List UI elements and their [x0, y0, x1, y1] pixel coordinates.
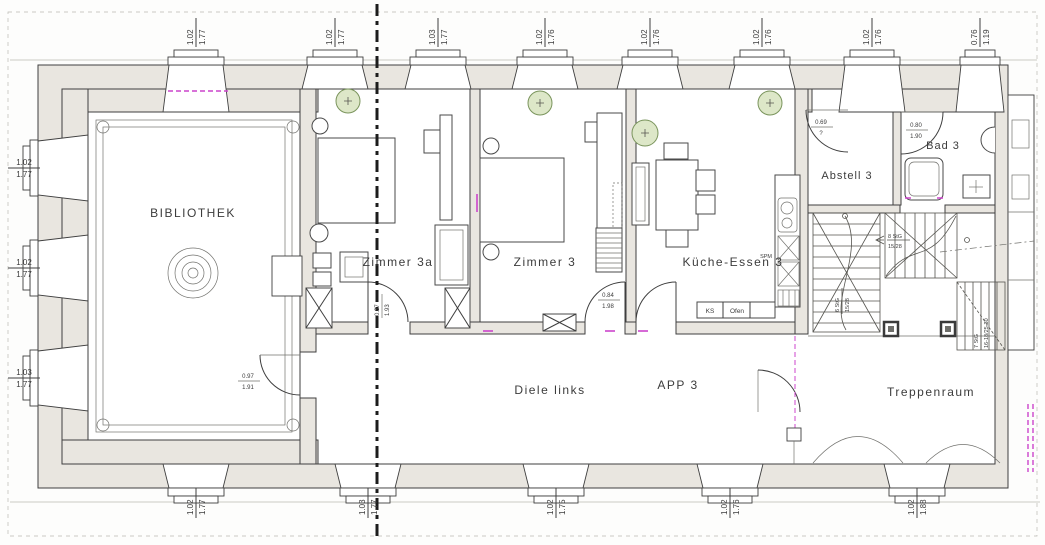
svg-text:1.98: 1.98: [602, 304, 614, 310]
dim-label: 1.03 1.77: [428, 18, 449, 47]
svg-text:1.02: 1.02: [186, 499, 195, 515]
tiled-stove-icon: [543, 314, 576, 331]
dim-label: 0.76 1.19: [970, 18, 991, 47]
svg-text:0.76: 0.76: [970, 29, 979, 45]
svg-text:1.76: 1.76: [874, 29, 883, 45]
radiator-icon: [596, 228, 622, 272]
dim-label: 1.02 1.76: [862, 18, 883, 47]
svg-text:1.02: 1.02: [752, 29, 761, 45]
treppenraum-label: Treppenraum: [887, 385, 975, 399]
bad-label: Bad 3: [926, 140, 960, 152]
svg-text:8 StG: 8 StG: [888, 234, 902, 240]
window: [512, 50, 578, 89]
wall-niche: [272, 256, 302, 296]
svg-text:1.77: 1.77: [16, 170, 32, 179]
svg-text:1.02: 1.02: [720, 499, 729, 515]
abstell-label: Abstell 3: [821, 170, 872, 182]
svg-text:0.80: 0.80: [910, 123, 922, 129]
svg-text:1.76: 1.76: [732, 499, 741, 515]
svg-text:1.76: 1.76: [547, 29, 556, 45]
plant-icon: [758, 91, 782, 115]
chair-icon: [666, 230, 688, 247]
svg-text:1.76: 1.76: [652, 29, 661, 45]
dining-table-icon: [656, 160, 698, 230]
svg-text:1.02: 1.02: [325, 29, 334, 45]
desk-icon: [440, 115, 452, 220]
window: [163, 50, 229, 112]
floor-plan-drawing: SPM KS Ofen: [0, 0, 1045, 545]
bench-icon: [632, 163, 649, 225]
ofen-label: Ofen: [730, 308, 744, 315]
window: [405, 50, 471, 89]
svg-text:15/28: 15/28: [888, 244, 902, 250]
bibliothek-label: BIBLIOTHEK: [150, 206, 236, 220]
washing-machine-icon: [963, 175, 990, 198]
svg-text:1.02: 1.02: [16, 258, 32, 267]
bed-icon: [318, 138, 395, 223]
window: [302, 50, 368, 89]
building-shell: [38, 65, 1034, 488]
side-table-icon: [310, 224, 328, 242]
side-table-icon: [312, 118, 328, 134]
svg-text:16-18/25-30: 16-18/25-30: [984, 318, 990, 348]
svg-text:1.93: 1.93: [385, 304, 391, 316]
svg-text:1.91: 1.91: [242, 385, 254, 391]
kueche-label: Küche-Essen 3: [683, 255, 784, 269]
shower-icon: [905, 158, 943, 200]
side-table-icon: [483, 244, 499, 260]
kitchen-counter: [775, 175, 800, 307]
dim-label: 1.02 1.76: [752, 18, 773, 47]
svg-text:1.77: 1.77: [337, 29, 346, 45]
wardrobe-icon: [597, 113, 622, 228]
svg-text:1.75: 1.75: [558, 499, 567, 515]
svg-text:1.77: 1.77: [370, 499, 379, 515]
svg-text:1.02: 1.02: [546, 499, 555, 515]
ks-ofen-units: KS Ofen: [697, 302, 775, 318]
chair-icon: [696, 170, 715, 191]
newel-post: [941, 322, 955, 336]
svg-text:1.90: 1.90: [910, 134, 922, 140]
left-windows: [23, 135, 88, 411]
plant-icon: [528, 91, 552, 115]
window: [729, 50, 795, 89]
newel-post: [884, 322, 898, 336]
svg-text:1.77: 1.77: [440, 29, 449, 45]
svg-text:0.87: 0.87: [375, 304, 381, 316]
svg-text:1.02: 1.02: [16, 158, 32, 167]
tiled-stove-icon: [306, 288, 332, 328]
svg-text:1.03: 1.03: [16, 368, 32, 377]
side-table-icon: [483, 138, 499, 154]
sofa-icon: [435, 225, 468, 285]
chair-icon: [696, 195, 715, 214]
svg-text:1.19: 1.19: [982, 29, 991, 45]
svg-text:1.02: 1.02: [907, 499, 916, 515]
svg-text:7 StG: 7 StG: [974, 334, 980, 348]
svg-text:1.77: 1.77: [198, 499, 207, 515]
svg-text:1.03: 1.03: [428, 29, 437, 45]
svg-text:1.77: 1.77: [16, 380, 32, 389]
chair-icon: [424, 130, 440, 153]
dim-label: 1.02 1.77: [186, 18, 207, 47]
zimmer3-label: Zimmer 3: [514, 255, 577, 269]
chair-icon: [585, 122, 598, 142]
svg-text:0.97: 0.97: [242, 374, 254, 380]
svg-text:1.02: 1.02: [186, 29, 195, 45]
top-dimensions: 1.02 1.77 1.02 1.77 1.03 1.77 1.02 1.76 …: [186, 18, 991, 47]
app3-label: APP 3: [657, 378, 698, 392]
svg-text:1.02: 1.02: [640, 29, 649, 45]
plant-icon: [632, 120, 658, 146]
svg-text:1.76: 1.76: [764, 29, 773, 45]
svg-text:1.77: 1.77: [198, 29, 207, 45]
svg-text:0.84: 0.84: [602, 293, 614, 299]
tiled-stove-icon: [445, 288, 470, 328]
diele-label: Diele links: [514, 383, 585, 397]
svg-text:6 StG: 6 StG: [835, 298, 841, 312]
svg-text:1.02: 1.02: [535, 29, 544, 45]
zimmer3a-label: Zimmer 3a: [363, 255, 434, 269]
bed-icon: [480, 158, 564, 242]
plant-icon: [336, 89, 360, 113]
svg-text:1.03: 1.03: [358, 499, 367, 515]
chair-icon: [664, 143, 688, 159]
svg-text:15/28: 15/28: [845, 298, 851, 312]
dim-label: 1.02 1.77: [325, 18, 346, 47]
svg-text:0.69: 0.69: [815, 120, 827, 126]
window: [956, 50, 1004, 112]
window: [617, 50, 683, 89]
svg-text:1.77: 1.77: [16, 270, 32, 279]
svg-text:1.88: 1.88: [919, 499, 928, 515]
floor-plan-page: SPM KS Ofen: [0, 0, 1045, 545]
svg-text:1.02: 1.02: [862, 29, 871, 45]
dim-label: 1.02 1.76: [535, 18, 556, 47]
window: [839, 50, 905, 112]
dim-label: 1.02 1.76: [640, 18, 661, 47]
ks-label: KS: [706, 308, 715, 315]
